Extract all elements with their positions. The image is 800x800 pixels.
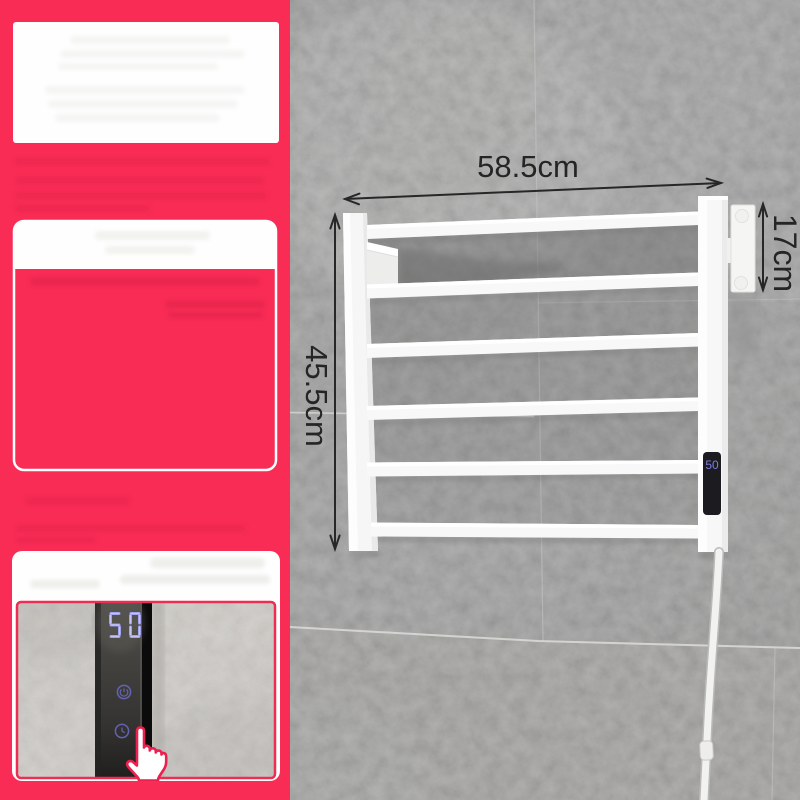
svg-text:58.5cm: 58.5cm [477,149,579,184]
svg-text:50: 50 [705,458,719,472]
svg-text:45.5cm: 45.5cm [299,345,334,447]
svg-text:17cm: 17cm [767,214,800,292]
